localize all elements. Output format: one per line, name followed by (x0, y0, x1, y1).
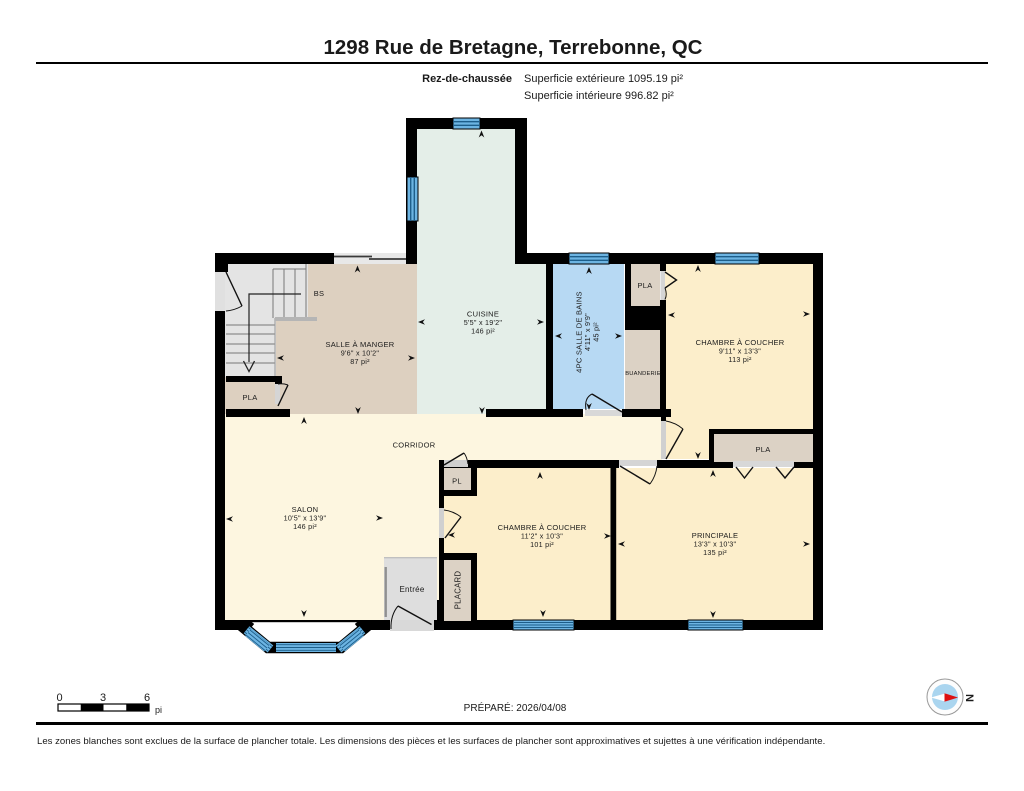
svg-text:N: N (963, 694, 975, 702)
svg-text:101 pi²: 101 pi² (530, 540, 554, 549)
svg-text:45 pi²: 45 pi² (592, 322, 601, 342)
svg-text:1298 Rue de Bretagne, Terrebon: 1298 Rue de Bretagne, Terrebonne, QC (324, 36, 703, 59)
svg-text:Rez-de-chaussée: Rez-de-chaussée (422, 73, 512, 85)
svg-text:PLA: PLA (638, 281, 653, 290)
svg-text:146 pi²: 146 pi² (471, 327, 495, 336)
svg-text:6: 6 (144, 692, 150, 704)
svg-text:Entrée: Entrée (399, 585, 424, 594)
svg-text:PL: PL (452, 477, 462, 486)
svg-text:113 pi²: 113 pi² (728, 355, 752, 364)
svg-text:0: 0 (56, 692, 62, 704)
svg-text:pi: pi (155, 705, 162, 715)
svg-text:3: 3 (100, 692, 106, 704)
svg-text:PLA: PLA (243, 393, 258, 402)
svg-text:135 pi²: 135 pi² (703, 548, 727, 557)
svg-text:Superficie extérieure 1095.19: Superficie extérieure 1095.19 pi² (524, 73, 683, 85)
svg-text:PRÉPARÉ: 2026/04/08: PRÉPARÉ: 2026/04/08 (464, 701, 567, 714)
svg-text:87 pi²: 87 pi² (350, 357, 370, 366)
svg-text:CORRIDOR: CORRIDOR (393, 441, 436, 450)
svg-text:BUANDERIE: BUANDERIE (625, 371, 661, 377)
svg-text:BS: BS (314, 289, 325, 298)
svg-text:Les zones blanches sont exclue: Les zones blanches sont exclues de la su… (37, 736, 825, 747)
svg-text:PLACARD: PLACARD (454, 571, 463, 610)
svg-text:PLA: PLA (756, 445, 771, 454)
svg-text:Superficie intérieure 996.82 p: Superficie intérieure 996.82 pi² (524, 90, 674, 102)
svg-text:146 pi²: 146 pi² (293, 522, 317, 531)
